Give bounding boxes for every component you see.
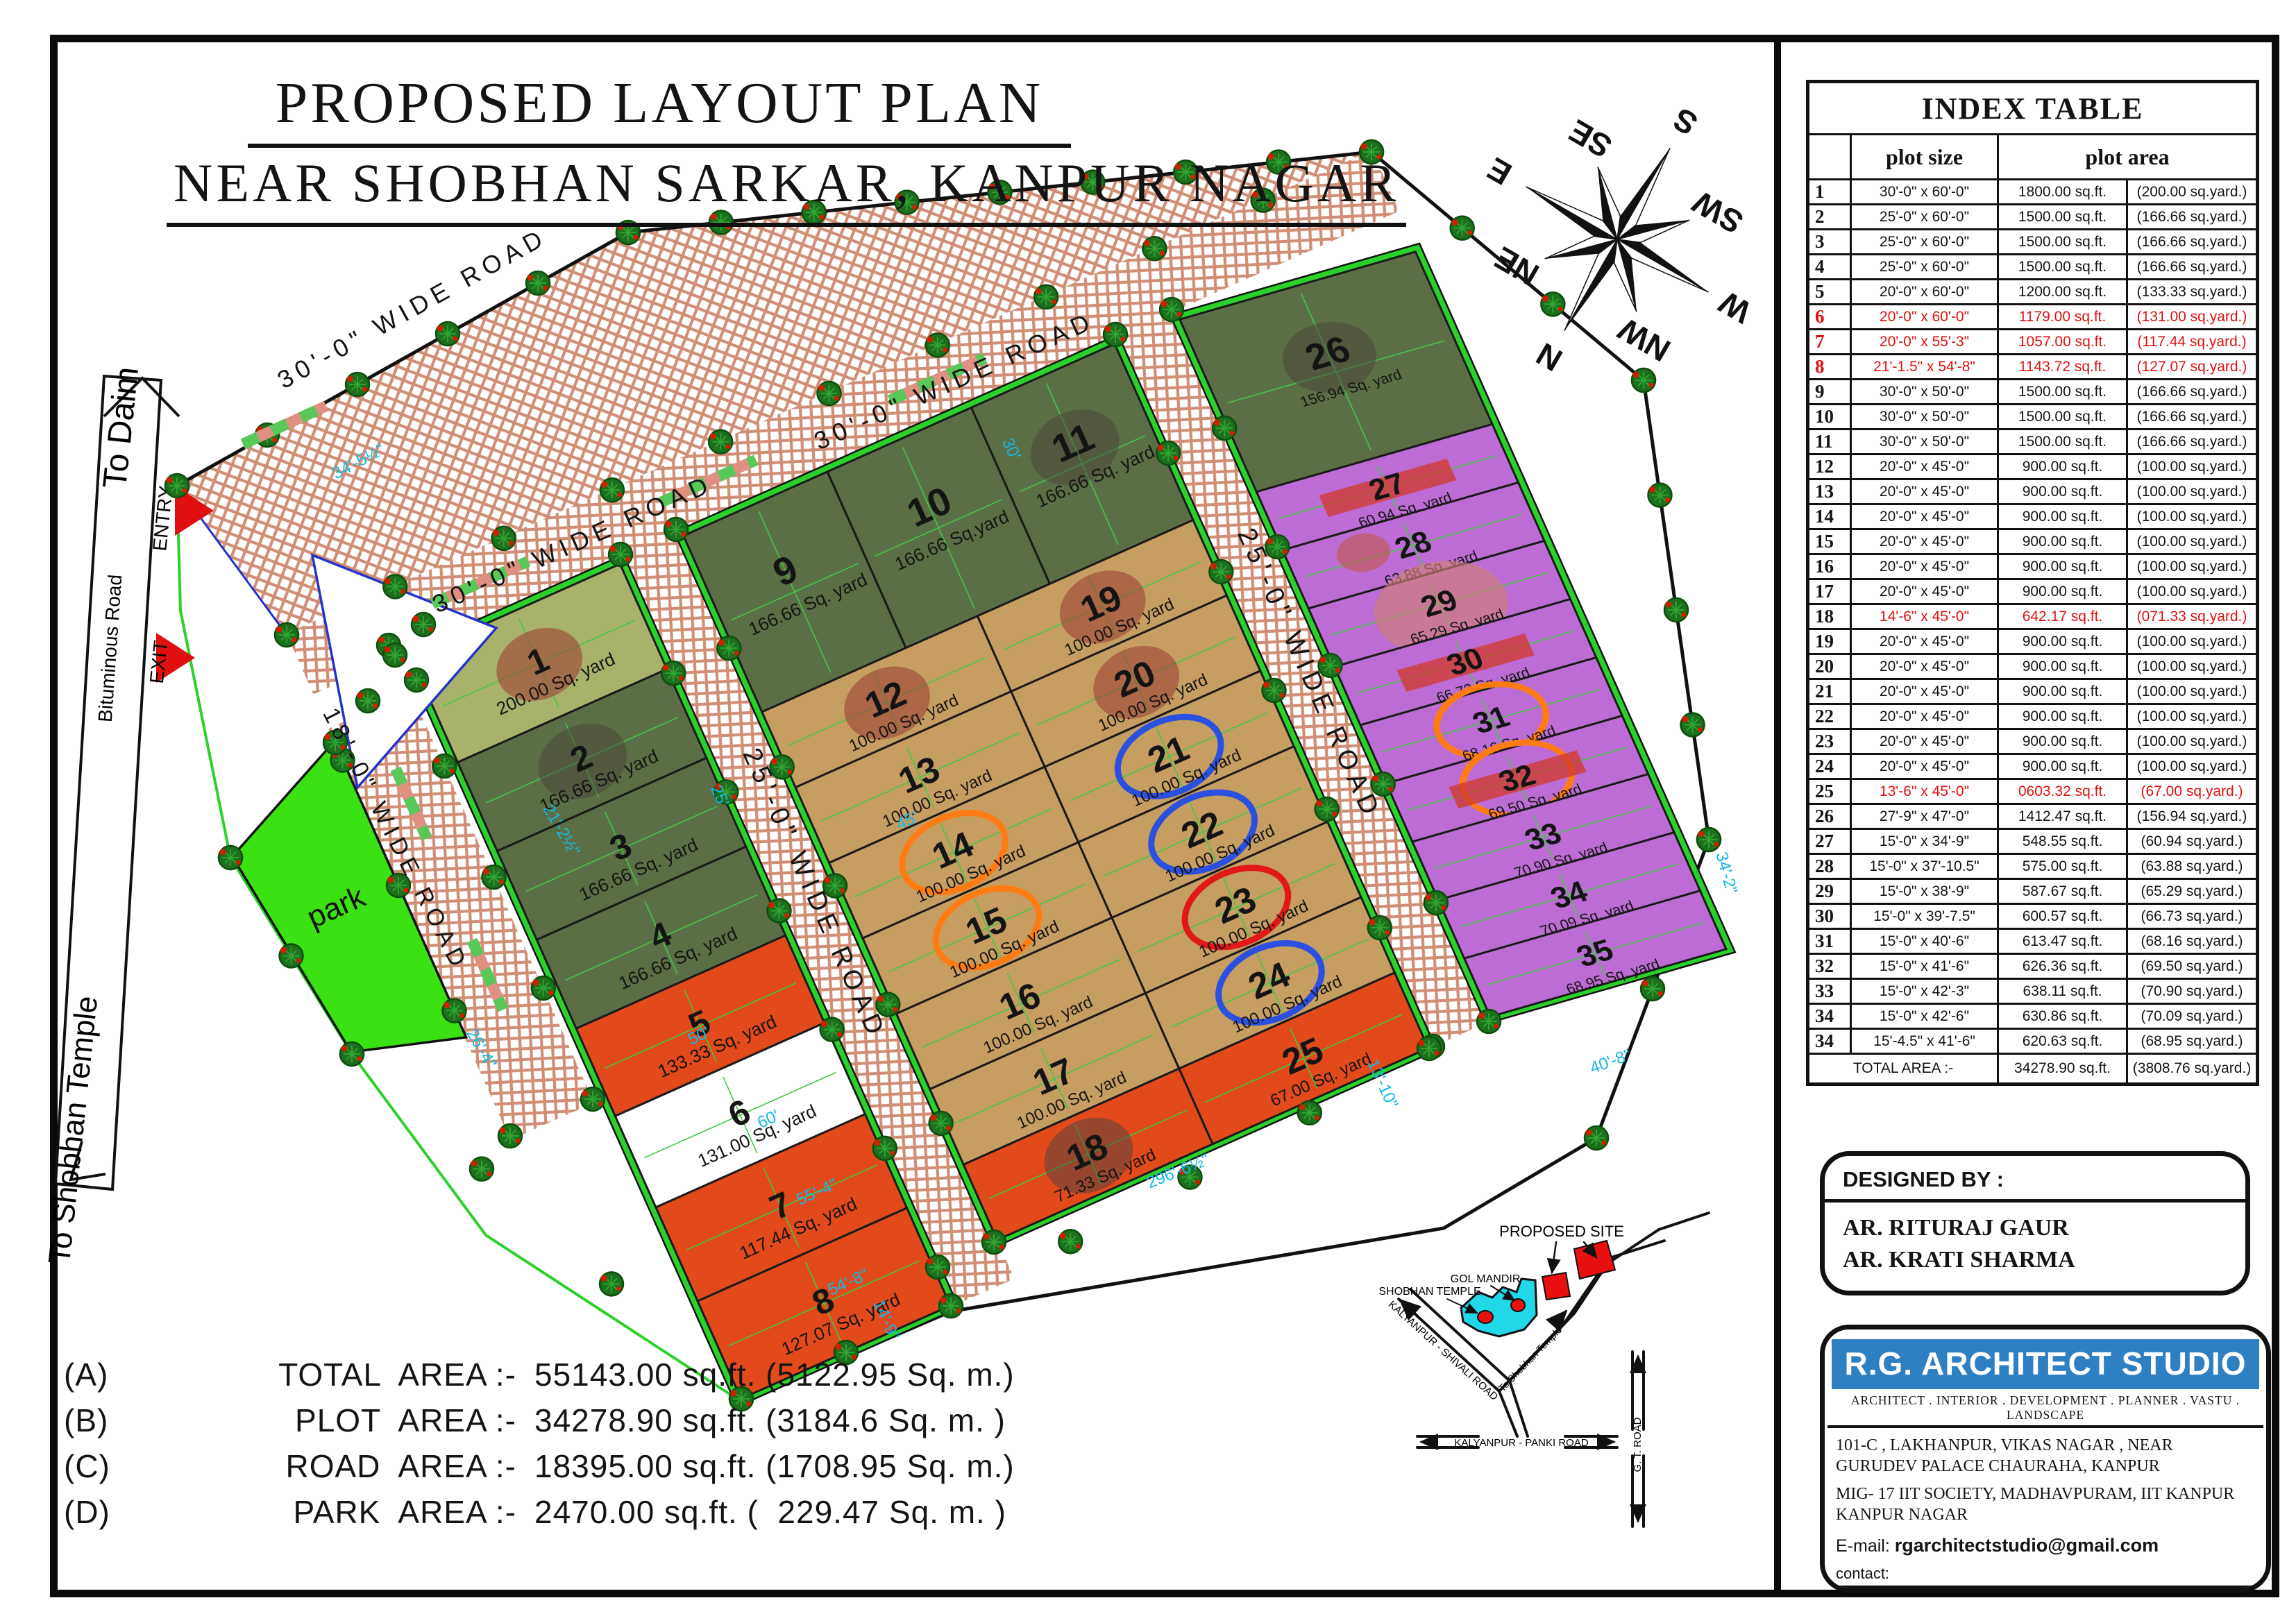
cell-no: 28	[1808, 854, 1851, 879]
cell-yard: (100.00 sq.yard.)	[2127, 454, 2258, 479]
summary-label: PLOT AREA :-	[128, 1397, 516, 1443]
cell-size: 25'-0" x 60'-0"	[1851, 230, 1998, 255]
tree-icon	[1424, 891, 1448, 915]
compass-label-E: E	[1481, 151, 1518, 192]
cell-no: 34	[1808, 1004, 1851, 1029]
exit-label: EXIT	[146, 639, 171, 684]
cell-size: 21'-1.5" x 54'-8"	[1851, 355, 1998, 380]
cell-sqft: 900.00 sq.ft.	[1998, 454, 2127, 479]
contact-label: contact:	[1825, 1556, 2266, 1588]
cell-size: 15'-0" x 39'-7.5"	[1851, 904, 1998, 929]
cell-sqft: 613.47 sq.ft.	[1998, 929, 2127, 954]
cell-size: 20'-0" x 45'-0"	[1851, 654, 1998, 679]
cell-no: 4	[1808, 255, 1851, 280]
cell-no: 9	[1808, 380, 1851, 405]
tree-icon	[939, 1294, 963, 1318]
cell-yard: (131.00 sq.yard.)	[2127, 305, 2258, 330]
cell-yard: (156.94 sq.yard.)	[2127, 804, 2258, 829]
summary-value: 34278.90 sq.ft. (3184.6 Sq. m. )	[516, 1397, 1006, 1443]
page-title-line2: NEAR SHOBHAN SARKAR, KANPUR NAGAR	[167, 152, 1406, 227]
cell-yard: (133.33 sq.yard.)	[2127, 280, 2258, 305]
cell-no: 29	[1808, 879, 1851, 904]
studio-address-1: 101-C , LAKHANPUR, VIKAS NAGAR , NEAR GU…	[1825, 1428, 2266, 1477]
keymap-shobhan-temple-label: SHOBHAN TEMPLE	[1378, 1286, 1480, 1298]
cell-size: 30'-0" x 50'-0"	[1851, 405, 1998, 430]
cell-size: 20'-0" x 45'-0"	[1851, 679, 1998, 704]
summary-plot-area: (B)PLOT AREA :-34278.90 sq.ft. (3184.6 S…	[64, 1397, 1015, 1443]
index-table-row: 2220'-0" x 45'-0"900.00 sq.ft.(100.00 sq…	[1808, 704, 2258, 729]
cell-sqft: 1057.00 sq.ft.	[1998, 330, 2127, 355]
tree-icon	[340, 1042, 364, 1066]
tree-icon	[532, 976, 555, 1000]
compass-label-W: W	[1712, 284, 1757, 330]
cell-sqft: 1179.00 sq.ft.	[1998, 305, 2127, 330]
compass-label-S: S	[1667, 101, 1704, 142]
cell-sqft: 587.67 sq.ft.	[1998, 879, 2127, 904]
studio-phones: +91- 7860211343 +91- 8317008218	[1825, 1588, 2266, 1592]
index-table-title: INDEX TABLE	[1808, 82, 2258, 135]
cell-no: 25	[1808, 779, 1851, 804]
tree-icon	[1451, 216, 1474, 240]
cell-yard: (100.00 sq.yard.)	[2127, 654, 2258, 679]
index-table-row: 3115'-0" x 40'-6"613.47 sq.ft.(68.16 sq.…	[1808, 929, 2258, 954]
cell-yard: (071.33 sq.yard.)	[2127, 604, 2258, 629]
cell-no: 32	[1808, 954, 1851, 979]
index-table-row: 1620'-0" x 45'-0"900.00 sq.ft.(100.00 sq…	[1808, 554, 2258, 579]
cell-no: 22	[1808, 704, 1851, 729]
tree-icon	[768, 899, 791, 923]
studio-name-banner: R.G. ARCHITECT STUDIO	[1832, 1339, 2259, 1389]
index-table-row: 1920'-0" x 45'-0"900.00 sq.ft.(100.00 sq…	[1808, 629, 2258, 654]
tree-icon	[526, 271, 550, 295]
cell-sqft: 548.55 sq.ft.	[1998, 829, 2127, 854]
index-table-row: 2815'-0" x 37'-10.5"575.00 sq.ft.(63.88 …	[1808, 854, 2258, 879]
summary-label: TOTAL AREA :-	[128, 1352, 516, 1397]
tree-icon	[492, 527, 516, 550]
tree-icon	[1648, 484, 1672, 507]
cell-no: 31	[1808, 929, 1851, 954]
cell-sqft: 900.00 sq.ft.	[1998, 754, 2127, 779]
tree-icon	[1142, 237, 1166, 260]
cell-size: 27'-9" x 47'-0"	[1851, 804, 1998, 829]
index-table-row: 130'-0" x 60'-0"1800.00 sq.ft.(200.00 sq…	[1808, 180, 2258, 205]
tree-icon	[818, 382, 841, 405]
cell-sqft: 900.00 sq.ft.	[1998, 529, 2127, 554]
cell-yard: (60.94 sq.yard.)	[2127, 829, 2258, 854]
tree-icon	[820, 1018, 844, 1042]
cell-yard: (63.88 sq.yard.)	[2127, 854, 2258, 879]
cell-sqft: 900.00 sq.ft.	[1998, 579, 2127, 604]
dimension-label: 40'-8"	[1587, 1046, 1634, 1078]
cell-yard: (200.00 sq.yard.)	[2127, 180, 2258, 205]
tree-icon	[1697, 828, 1721, 851]
index-table-row: 2020'-0" x 45'-0"900.00 sq.ft.(100.00 sq…	[1808, 654, 2258, 679]
tree-icon	[1104, 323, 1127, 346]
cell-yard: (68.95 sq.yard.)	[2127, 1029, 2258, 1054]
cell-no: 6	[1808, 305, 1851, 330]
cell-no: 33	[1808, 979, 1851, 1004]
keymap-proposed-site-label: PROPOSED SITE	[1499, 1223, 1624, 1240]
cell-sqft: 900.00 sq.ft.	[1998, 679, 2127, 704]
cell-no: 14	[1808, 504, 1851, 529]
summary-value: 2470.00 sq.ft. ( 229.47 Sq. m. )	[516, 1489, 1006, 1535]
tree-icon	[346, 373, 369, 396]
cell-sqft: 900.00 sq.ft.	[1998, 629, 2127, 654]
cell-yard: (69.50 sq.yard.)	[2127, 954, 2258, 979]
tree-icon	[709, 430, 732, 454]
index-table-row: 3415'-4.5" x 41'-6"620.63 sq.ft.(68.95 s…	[1808, 1029, 2258, 1054]
cell-size: 25'-0" x 60'-0"	[1851, 205, 1998, 230]
tree-icon	[498, 1124, 522, 1148]
cell-yard: (166.66 sq.yard.)	[2127, 230, 2258, 255]
cell-yard: (68.16 sq.yard.)	[2127, 929, 2258, 954]
tree-icon	[383, 575, 407, 598]
cell-no: 1	[1808, 180, 1851, 205]
cell-yard: (166.66 sq.yard.)	[2127, 430, 2258, 454]
architect-name: AR. KRATI SHARMA	[1843, 1244, 2245, 1276]
cell-no: 24	[1808, 754, 1851, 779]
cell-sqft: 1500.00 sq.ft.	[1998, 380, 2127, 405]
cell-sqft: 1500.00 sq.ft.	[1998, 430, 2127, 454]
index-table-row: 1420'-0" x 45'-0"900.00 sq.ft.(100.00 sq…	[1808, 504, 2258, 529]
tree-icon	[1681, 713, 1705, 737]
cell-sqft: 1500.00 sq.ft.	[1998, 255, 2127, 280]
studio-email-row: E-mail: rgarchitectstudio@gmail.com	[1825, 1525, 2266, 1556]
index-table-row: 1320'-0" x 45'-0"900.00 sq.ft.(100.00 sq…	[1808, 479, 2258, 504]
cell-sqft: 1500.00 sq.ft.	[1998, 405, 2127, 430]
index-table-row: 1814'-6" x 45'-0"642.17 sq.ft.(071.33 sq…	[1808, 604, 2258, 629]
cell-yard: (166.66 sq.yard.)	[2127, 255, 2258, 280]
cell-yard: (100.00 sq.yard.)	[2127, 629, 2258, 654]
cell-no: 2	[1808, 205, 1851, 230]
email-label: E-mail:	[1836, 1536, 1890, 1556]
cell-sqft: 1412.47 sq.ft.	[1998, 804, 2127, 829]
cell-yard: (166.66 sq.yard.)	[2127, 405, 2258, 430]
area-summary: (A)TOTAL AREA :-55143.00 sq.ft. (5122.95…	[64, 1352, 1015, 1535]
tree-icon	[1298, 1101, 1322, 1125]
tree-icon	[436, 322, 459, 346]
tree-icon	[1632, 368, 1655, 392]
index-table-row: 620'-0" x 60'-0"1179.00 sq.ft.(131.00 sq…	[1808, 305, 2258, 330]
cell-size: 20'-0" x 60'-0"	[1851, 280, 1998, 305]
cell-yard: (66.73 sq.yard.)	[2127, 904, 2258, 929]
tree-icon	[1368, 916, 1392, 940]
cell-no: 11	[1808, 430, 1851, 454]
tree-icon	[1417, 1037, 1441, 1060]
tree-icon	[1058, 1230, 1082, 1253]
cell-no: 34	[1808, 1029, 1851, 1054]
tree-icon	[873, 1137, 897, 1160]
index-table-row: 1520'-0" x 45'-0"900.00 sq.ft.(100.00 sq…	[1808, 529, 2258, 554]
title-block: PROPOSED LAYOUT PLAN NEAR SHOBHAN SARKAR…	[167, 69, 1152, 227]
cell-size: 20'-0" x 45'-0"	[1851, 729, 1998, 754]
cell-size: 30'-0" x 50'-0"	[1851, 380, 1998, 405]
index-table-header-size: plot size	[1851, 135, 1998, 180]
cell-no: 27	[1808, 829, 1851, 854]
tree-icon	[1477, 1010, 1501, 1033]
summary-key: (C)	[64, 1443, 128, 1489]
tree-icon	[609, 543, 632, 566]
summary-key: (A)	[64, 1352, 128, 1397]
cell-yard: (100.00 sq.yard.)	[2127, 679, 2258, 704]
cell-sqft: 900.00 sq.ft.	[1998, 504, 2127, 529]
tree-icon	[600, 478, 624, 502]
cell-no: 5	[1808, 280, 1851, 305]
tree-icon	[1664, 598, 1688, 622]
tree-icon	[717, 636, 741, 660]
cell-size: 15'-0" x 40'-6"	[1851, 929, 1998, 954]
tree-icon	[1315, 797, 1339, 821]
tree-icon	[1541, 292, 1564, 316]
cell-sqft: 626.36 sq.ft.	[1998, 954, 2127, 979]
cell-sqft: 1500.00 sq.ft.	[1998, 205, 2127, 230]
cell-size: 15'-0" x 38'-9"	[1851, 879, 1998, 904]
cell-yard: (100.00 sq.yard.)	[2127, 729, 2258, 754]
total-yard: (3808.76 sq.yard.)	[2127, 1054, 2258, 1085]
architect-name: AR. RITURAJ GAUR	[1843, 1212, 2245, 1244]
cell-sqft: 900.00 sq.ft.	[1998, 729, 2127, 754]
tree-icon	[1641, 977, 1664, 1001]
cell-yard: (127.07 sq.yard.)	[2127, 355, 2258, 380]
cell-yard: (100.00 sq.yard.)	[2127, 554, 2258, 579]
tree-icon	[1160, 298, 1183, 321]
tree-icon	[165, 474, 189, 498]
cell-yard: (65.29 sq.yard.)	[2127, 879, 2258, 904]
cell-yard: (166.66 sq.yard.)	[2127, 380, 2258, 405]
cell-no: 16	[1808, 554, 1851, 579]
cell-size: 25'-0" x 60'-0"	[1851, 255, 1998, 280]
page-title-line1: PROPOSED LAYOUT PLAN	[248, 69, 1072, 148]
cell-size: 15'-0" x 42'-6"	[1851, 1004, 1998, 1029]
cell-no: 21	[1808, 679, 1851, 704]
compass-label-SE: SE	[1563, 112, 1618, 165]
right-panel: INDEX TABLE plot size plot area 130'-0" …	[1774, 42, 2281, 1590]
cell-size: 30'-0" x 60'-0"	[1851, 180, 1998, 205]
cell-no: 19	[1808, 629, 1851, 654]
cell-no: 13	[1808, 479, 1851, 504]
index-table-header-area: plot area	[1998, 135, 2258, 180]
tree-icon	[482, 865, 506, 889]
cell-size: 15'-0" x 37'-10.5"	[1851, 854, 1998, 879]
designed-by-title: DESIGNED BY :	[1825, 1156, 2245, 1203]
index-table-row: 225'-0" x 60'-0"1500.00 sq.ft.(166.66 sq…	[1808, 205, 2258, 230]
index-table-row: 2513'-6" x 45'-0"0603.32 sq.ft.(67.00 sq…	[1808, 779, 2258, 804]
cell-size: 20'-0" x 45'-0"	[1851, 554, 1998, 579]
index-table-row: 3015'-0" x 39'-7.5"600.57 sq.ft.(66.73 s…	[1808, 904, 2258, 929]
index-table-row: 720'-0" x 55'-3"1057.00 sq.ft.(117.44 sq…	[1808, 330, 2258, 355]
index-table-row: 3215'-0" x 41'-6"626.36 sq.ft.(69.50 sq.…	[1808, 954, 2258, 979]
tree-icon	[1213, 416, 1236, 440]
cell-sqft: 900.00 sq.ft.	[1998, 479, 2127, 504]
index-table: INDEX TABLE plot size plot area 130'-0" …	[1806, 80, 2259, 1086]
cell-size: 20'-0" x 45'-0"	[1851, 529, 1998, 554]
cell-yard: (100.00 sq.yard.)	[2127, 504, 2258, 529]
cell-size: 20'-0" x 60'-0"	[1851, 305, 1998, 330]
tree-icon	[219, 846, 242, 869]
cell-sqft: 1143.72 sq.ft.	[1998, 355, 2127, 380]
cell-size: 15'-0" x 42'-3"	[1851, 979, 1998, 1004]
cell-size: 15'-0" x 41'-6"	[1851, 954, 1998, 979]
index-table-row: 3315'-0" x 42'-3"638.11 sq.ft.(70.90 sq.…	[1808, 979, 2258, 1004]
cell-sqft: 900.00 sq.ft.	[1998, 704, 2127, 729]
tree-icon	[926, 333, 949, 357]
cell-size: 20'-0" x 45'-0"	[1851, 479, 1998, 504]
cell-sqft: 638.11 sq.ft.	[1998, 979, 2127, 1004]
tree-icon	[443, 999, 466, 1023]
cell-size: 30'-0" x 50'-0"	[1851, 430, 1998, 454]
cell-size: 20'-0" x 45'-0"	[1851, 754, 1998, 779]
index-table-row: 3415'-0" x 42'-6"630.86 sq.ft.(70.09 sq.…	[1808, 1004, 2258, 1029]
index-table-corner	[1808, 135, 1851, 180]
cell-size: 13'-6" x 45'-0"	[1851, 779, 1998, 804]
cell-no: 10	[1808, 405, 1851, 430]
studio-tagline: ARCHITECT . INTERIOR . DEVELOPMENT . PLA…	[1827, 1389, 2263, 1428]
tree-icon	[275, 623, 298, 647]
cell-sqft: 575.00 sq.ft.	[1998, 854, 2127, 879]
cell-yard: (117.44 sq.yard.)	[2127, 330, 2258, 355]
tree-icon	[280, 944, 303, 968]
studio-box: R.G. ARCHITECT STUDIO ARCHITECT . INTERI…	[1820, 1325, 2271, 1592]
tree-icon	[432, 754, 456, 778]
tree-icon	[664, 518, 688, 541]
summary-label: PARK AREA :-	[128, 1489, 516, 1535]
cell-no: 26	[1808, 804, 1851, 829]
cell-no: 23	[1808, 729, 1851, 754]
tree-icon	[581, 1087, 605, 1111]
cell-sqft: 642.17 sq.ft.	[1998, 604, 2127, 629]
designed-by-box: DESIGNED BY : AR. RITURAJ GAUR AR. KRATI…	[1820, 1151, 2250, 1295]
index-table-row: 930'-0" x 50'-0"1500.00 sq.ft.(166.66 sq…	[1808, 380, 2258, 405]
index-table-row: 1220'-0" x 45'-0"900.00 sq.ft.(100.00 sq…	[1808, 454, 2258, 479]
index-table-row: 425'-0" x 60'-0"1500.00 sq.ft.(166.66 sq…	[1808, 255, 2258, 280]
tree-icon	[1156, 441, 1180, 465]
cell-sqft: 1800.00 sq.ft.	[1998, 180, 2127, 205]
cell-yard: (100.00 sq.yard.)	[2127, 529, 2258, 554]
total-sqft: 34278.90 sq.ft.	[1998, 1054, 2127, 1085]
summary-label: ROAD AREA :-	[128, 1443, 516, 1489]
summary-value: 55143.00 sq.ft. (5122.95 Sq. m.)	[516, 1352, 1015, 1397]
index-table-row: 2320'-0" x 45'-0"900.00 sq.ft.(100.00 sq…	[1808, 729, 2258, 754]
cell-size: 20'-0" x 55'-3"	[1851, 330, 1998, 355]
cell-no: 17	[1808, 579, 1851, 604]
tree-icon	[1263, 679, 1286, 702]
summary-road-area: (C)ROAD AREA :-18395.00 sq.ft. (1708.95 …	[64, 1443, 1015, 1489]
tree-icon	[1585, 1126, 1608, 1150]
cell-size: 20'-0" x 45'-0"	[1851, 579, 1998, 604]
tree-icon	[982, 1230, 1006, 1254]
cell-sqft: 900.00 sq.ft.	[1998, 554, 2127, 579]
tree-icon	[1034, 285, 1058, 309]
tree-icon	[600, 1272, 623, 1295]
cell-sqft: 900.00 sq.ft.	[1998, 654, 2127, 679]
cell-size: 14'-6" x 45'-0"	[1851, 604, 1998, 629]
index-table-row: 1130'-0" x 50'-0"1500.00 sq.ft.(166.66 s…	[1808, 430, 2258, 454]
index-table-row: 2120'-0" x 45'-0"900.00 sq.ft.(100.00 sq…	[1808, 679, 2258, 704]
cell-sqft: 620.63 sq.ft.	[1998, 1029, 2127, 1054]
cell-size: 20'-0" x 45'-0"	[1851, 629, 1998, 654]
tree-icon	[470, 1157, 493, 1181]
index-table-row: 821'-1.5" x 54'-8"1143.72 sq.ft.(127.07 …	[1808, 355, 2258, 380]
index-table-total-row: TOTAL AREA :- 34278.90 sq.ft. (3808.76 s…	[1808, 1054, 2258, 1085]
cell-size: 15'-4.5" x 41'-6"	[1851, 1029, 1998, 1054]
index-table-row: 2627'-9" x 47'-0"1412.47 sq.ft.(156.94 s…	[1808, 804, 2258, 829]
cell-no: 20	[1808, 654, 1851, 679]
cell-yard: (67.00 sq.yard.)	[2127, 779, 2258, 804]
cell-no: 18	[1808, 604, 1851, 629]
compass-label-NE: NE	[1488, 239, 1544, 293]
cell-yard: (70.09 sq.yard.)	[2127, 1004, 2258, 1029]
cell-yard: (100.00 sq.yard.)	[2127, 479, 2258, 504]
tree-icon	[1209, 560, 1233, 584]
index-table-row: 520'-0" x 60'-0"1200.00 sq.ft.(133.33 sq…	[1808, 280, 2258, 305]
tree-icon	[926, 1255, 949, 1279]
cell-sqft: 630.86 sq.ft.	[1998, 1004, 2127, 1029]
index-table-row: 1720'-0" x 45'-0"900.00 sq.ft.(100.00 sq…	[1808, 579, 2258, 604]
keymap-panki-road-label: KALYANPUR - PANKI ROAD	[1454, 1437, 1589, 1449]
cell-sqft: 0603.32 sq.ft.	[1998, 779, 2127, 804]
cell-size: 20'-0" x 45'-0"	[1851, 704, 1998, 729]
tree-icon	[929, 1112, 953, 1135]
tree-icon	[383, 643, 407, 667]
index-table-row: 2420'-0" x 45'-0"900.00 sq.ft.(100.00 sq…	[1808, 754, 2258, 779]
cell-yard: (100.00 sq.yard.)	[2127, 704, 2258, 729]
cell-no: 30	[1808, 904, 1851, 929]
summary-total-area: (A)TOTAL AREA :-55143.00 sq.ft. (5122.95…	[64, 1352, 1015, 1397]
cell-yard: (100.00 sq.yard.)	[2127, 579, 2258, 604]
compass-label-SW: SW	[1686, 184, 1749, 241]
total-label: TOTAL AREA :-	[1808, 1054, 1998, 1085]
summary-value: 18395.00 sq.ft. (1708.95 Sq. m.)	[516, 1443, 1015, 1489]
cell-no: 12	[1808, 454, 1851, 479]
cell-no: 15	[1808, 529, 1851, 554]
index-table-row: 1030'-0" x 50'-0"1500.00 sq.ft.(166.66 s…	[1808, 405, 2258, 430]
keymap-gol-mandir-label: GOL MANDIR	[1451, 1273, 1521, 1285]
cell-sqft: 600.57 sq.ft.	[1998, 904, 2127, 929]
compass-label-N: N	[1530, 336, 1569, 379]
cell-yard: (70.90 sq.yard.)	[2127, 979, 2258, 1004]
cell-sqft: 1200.00 sq.ft.	[1998, 280, 2127, 305]
summary-key: (D)	[64, 1489, 128, 1535]
index-table-row: 2715'-0" x 34'-9"548.55 sq.ft.(60.94 sq.…	[1808, 829, 2258, 854]
cell-no: 3	[1808, 230, 1851, 255]
cell-yard: (100.00 sq.yard.)	[2127, 754, 2258, 779]
dimension-label: 34'-2"	[1712, 850, 1741, 896]
cell-size: 20'-0" x 45'-0"	[1851, 504, 1998, 529]
index-table-row: 2915'-0" x 38'-9"587.67 sq.ft.(65.29 sq.…	[1808, 879, 2258, 904]
cell-no: 8	[1808, 355, 1851, 380]
cell-yard: (166.66 sq.yard.)	[2127, 205, 2258, 230]
studio-address-2: MIG- 17 IIT SOCIETY, MADHAVPURAM, IIT KA…	[1825, 1477, 2266, 1525]
email-value: rgarchitectstudio@gmail.com	[1895, 1535, 2159, 1556]
summary-key: (B)	[64, 1397, 128, 1443]
cell-size: 20'-0" x 45'-0"	[1851, 454, 1998, 479]
index-table-row: 325'-0" x 60'-0"1500.00 sq.ft.(166.66 sq…	[1808, 230, 2258, 255]
summary-park-area: (D)PARK AREA :-2470.00 sq.ft. ( 229.47 S…	[64, 1489, 1015, 1535]
tree-icon	[661, 661, 685, 685]
keymap-gt-road-label: G. T. ROAD	[1632, 1417, 1644, 1472]
cell-size: 15'-0" x 34'-9"	[1851, 829, 1998, 854]
cell-no: 7	[1808, 330, 1851, 355]
cell-sqft: 1500.00 sq.ft.	[1998, 230, 2127, 255]
